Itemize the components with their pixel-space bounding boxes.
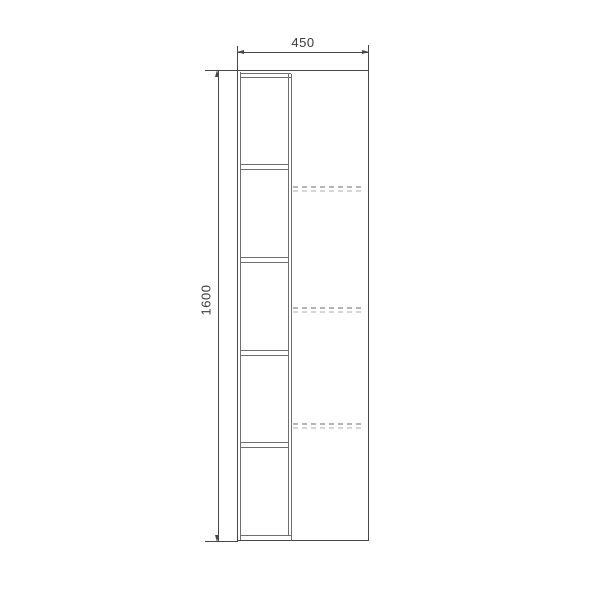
hidden-shelf-line [293,186,365,191]
cabinet-left-panel-inner-line [240,72,241,540]
door-left-edge-line [291,74,292,541]
hidden-shelf-line [293,423,365,428]
dimension-arrow-up-icon [215,70,219,77]
hidden-shelf-dash-bottom [293,311,365,313]
height-dimension-label: 1600 [199,285,214,316]
width-dim-extension-line-right [368,45,369,71]
hidden-shelf-dash-top [293,186,365,188]
cabinet-outline [237,70,369,541]
shelf-line [240,164,288,170]
cabinet-bottom-panel-line [240,535,291,536]
hidden-shelf-dash-top [293,307,365,309]
width-dimension-line [237,52,369,53]
height-dim-extension-line-top [205,70,238,71]
width-dimension-label: 450 [237,35,369,50]
shelf-line [240,350,288,356]
hidden-shelf-line [293,307,365,312]
height-dimension-line [218,70,219,542]
dimension-arrow-right-icon [362,50,369,54]
open-column-top-panel [240,73,291,78]
technical-drawing-canvas: 450 1600 [0,0,600,600]
height-dim-extension-line-bottom [205,541,238,542]
shelf-line [240,442,288,448]
open-column-right-side-line [288,74,289,535]
shelf-line [240,257,288,263]
hidden-shelf-dash-bottom [293,427,365,429]
dimension-arrow-down-icon [215,535,219,542]
hidden-shelf-dash-bottom [293,190,365,192]
dimension-arrow-left-icon [237,50,244,54]
hidden-shelf-dash-top [293,423,365,425]
